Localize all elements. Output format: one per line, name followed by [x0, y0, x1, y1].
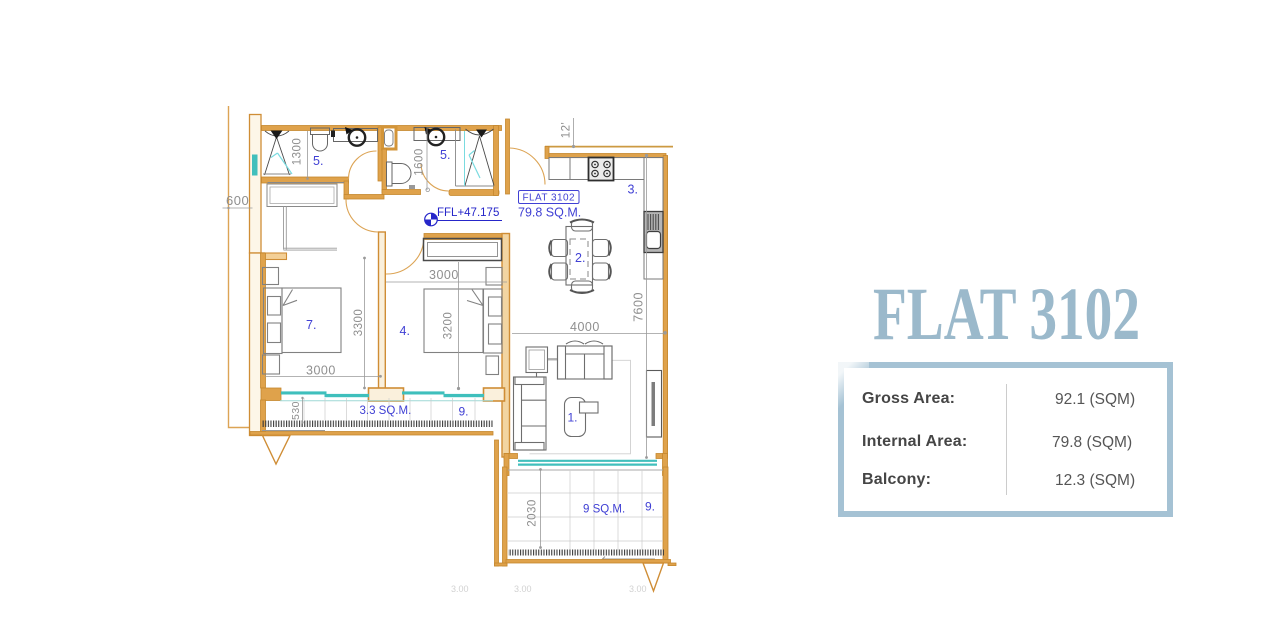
svg-text:79.8 SQ.M.: 79.8 SQ.M.: [518, 206, 581, 220]
svg-text:4000: 4000: [570, 320, 600, 334]
svg-text:3.00: 3.00: [629, 584, 647, 594]
svg-text:3.00: 3.00: [514, 584, 532, 594]
svg-text:3000: 3000: [306, 364, 336, 378]
svg-text:3300: 3300: [353, 309, 365, 337]
svg-text:FLAT 3102: FLAT 3102: [523, 193, 576, 204]
svg-text:9.: 9.: [459, 405, 469, 419]
svg-text:FFL+47.175: FFL+47.175: [437, 207, 499, 219]
svg-text:2030: 2030: [527, 499, 539, 527]
svg-text:1.: 1.: [568, 411, 578, 425]
svg-text:7600: 7600: [632, 292, 646, 322]
svg-text:3200: 3200: [443, 312, 455, 340]
svg-text:FLAT 3102: FLAT 3102: [873, 273, 1140, 356]
svg-text:600: 600: [226, 193, 249, 208]
svg-text:3000: 3000: [429, 268, 459, 282]
svg-text:3.3 SQ.M.: 3.3 SQ.M.: [360, 405, 412, 417]
svg-text:1600: 1600: [414, 148, 426, 176]
svg-text:1300: 1300: [292, 138, 304, 166]
svg-text:3.00: 3.00: [451, 584, 469, 594]
svg-text:12': 12': [561, 122, 573, 139]
svg-text:4.: 4.: [400, 324, 410, 338]
svg-text:9 SQ.M.: 9 SQ.M.: [583, 504, 625, 516]
svg-text:530: 530: [290, 401, 302, 420]
svg-text:5.: 5.: [313, 154, 323, 168]
svg-text:2.: 2.: [575, 251, 585, 265]
svg-text:3.: 3.: [628, 183, 638, 197]
svg-text:5.: 5.: [440, 148, 450, 162]
svg-text:9.: 9.: [645, 500, 655, 514]
svg-text:7.: 7.: [306, 318, 316, 332]
